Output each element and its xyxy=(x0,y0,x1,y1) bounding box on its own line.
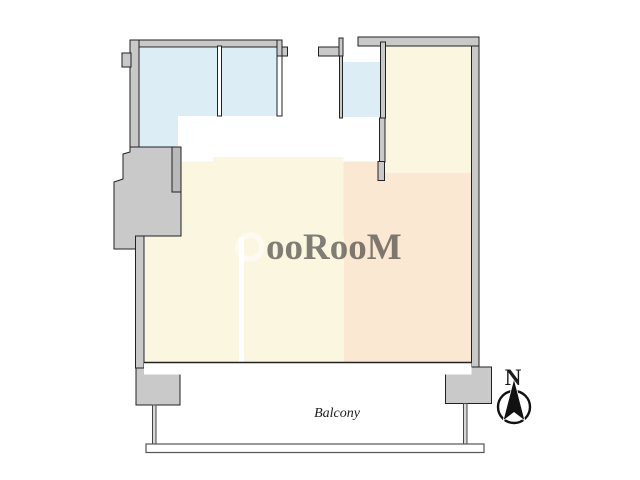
svg-text:ooRooM: ooRooM xyxy=(266,227,402,268)
svg-text:N: N xyxy=(505,365,522,390)
svg-text:Balcony: Balcony xyxy=(314,406,361,421)
